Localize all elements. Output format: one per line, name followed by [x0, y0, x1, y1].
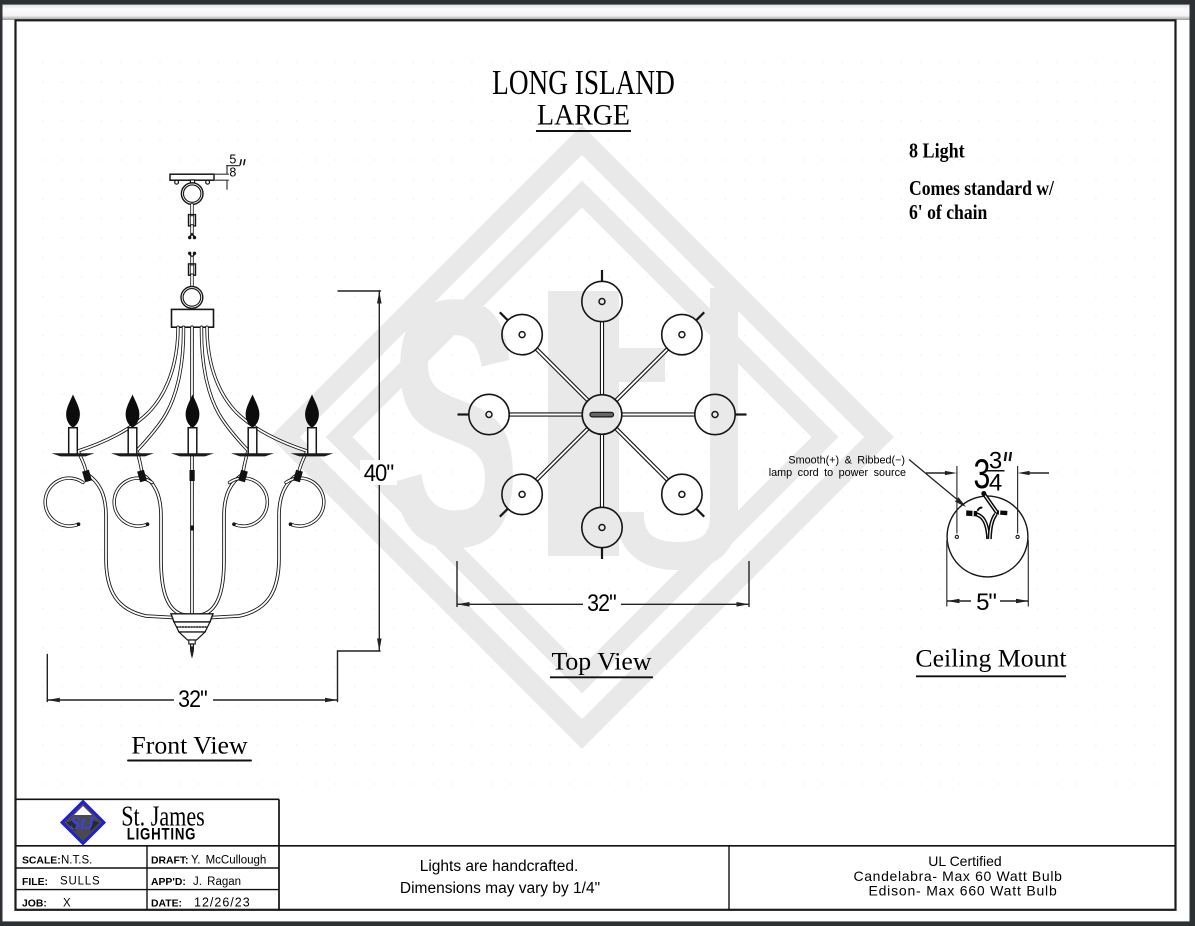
svg-text:lamp cord to power source: lamp cord to power source: [769, 467, 906, 479]
svg-text:3: 3: [974, 450, 991, 497]
svg-text:LIGHTING: LIGHTING: [127, 825, 197, 844]
svg-text:Ceiling Mount: Ceiling Mount: [915, 644, 1067, 673]
svg-text:Comes standard w/: Comes standard w/: [909, 178, 1054, 201]
svg-text:X: X: [63, 898, 71, 910]
svg-text:5": 5": [976, 589, 996, 616]
svg-text:SCALE:: SCALE:: [22, 856, 61, 867]
svg-text:Top View: Top View: [551, 646, 651, 675]
svg-text:Lights are handcrafted.: Lights are handcrafted.: [420, 858, 579, 875]
svg-text:APP'D:: APP'D:: [151, 877, 186, 888]
svg-text:LARGE: LARGE: [537, 99, 630, 132]
svg-text:N.T.S.: N.T.S.: [61, 855, 92, 867]
svg-text:8: 8: [229, 165, 236, 179]
svg-text:StJ: StJ: [70, 813, 95, 833]
svg-text:40": 40": [364, 459, 394, 486]
svg-text:Dimensions may vary by 1/4": Dimensions may vary by 1/4": [400, 880, 600, 897]
svg-text:LONG ISLAND: LONG ISLAND: [492, 63, 675, 102]
svg-text:DRAFT:: DRAFT:: [151, 856, 189, 867]
svg-text:8 Light: 8 Light: [909, 140, 965, 163]
svg-text:4: 4: [989, 470, 1002, 497]
svg-text:Y. McCullough: Y. McCullough: [191, 855, 266, 867]
svg-text:6' of chain: 6' of chain: [909, 202, 988, 225]
svg-text:Smooth(+) & Ribbed(−): Smooth(+) & Ribbed(−): [788, 455, 905, 467]
svg-text:32": 32": [178, 685, 207, 712]
svg-text:FILE:: FILE:: [22, 877, 48, 888]
svg-text:Edison- Max 660 Watt Bulb: Edison- Max 660 Watt Bulb: [868, 883, 1057, 899]
svg-text:Front View: Front View: [131, 731, 248, 760]
svg-text:J. Ragan: J. Ragan: [193, 876, 241, 888]
svg-text:32": 32": [587, 589, 616, 616]
svg-text:UL Certified: UL Certified: [928, 853, 1001, 869]
svg-text:SULLS: SULLS: [60, 876, 100, 888]
svg-text:JOB:: JOB:: [22, 899, 47, 910]
svg-text:DATE:: DATE:: [151, 899, 182, 910]
svg-text:12/26/23: 12/26/23: [194, 896, 251, 910]
